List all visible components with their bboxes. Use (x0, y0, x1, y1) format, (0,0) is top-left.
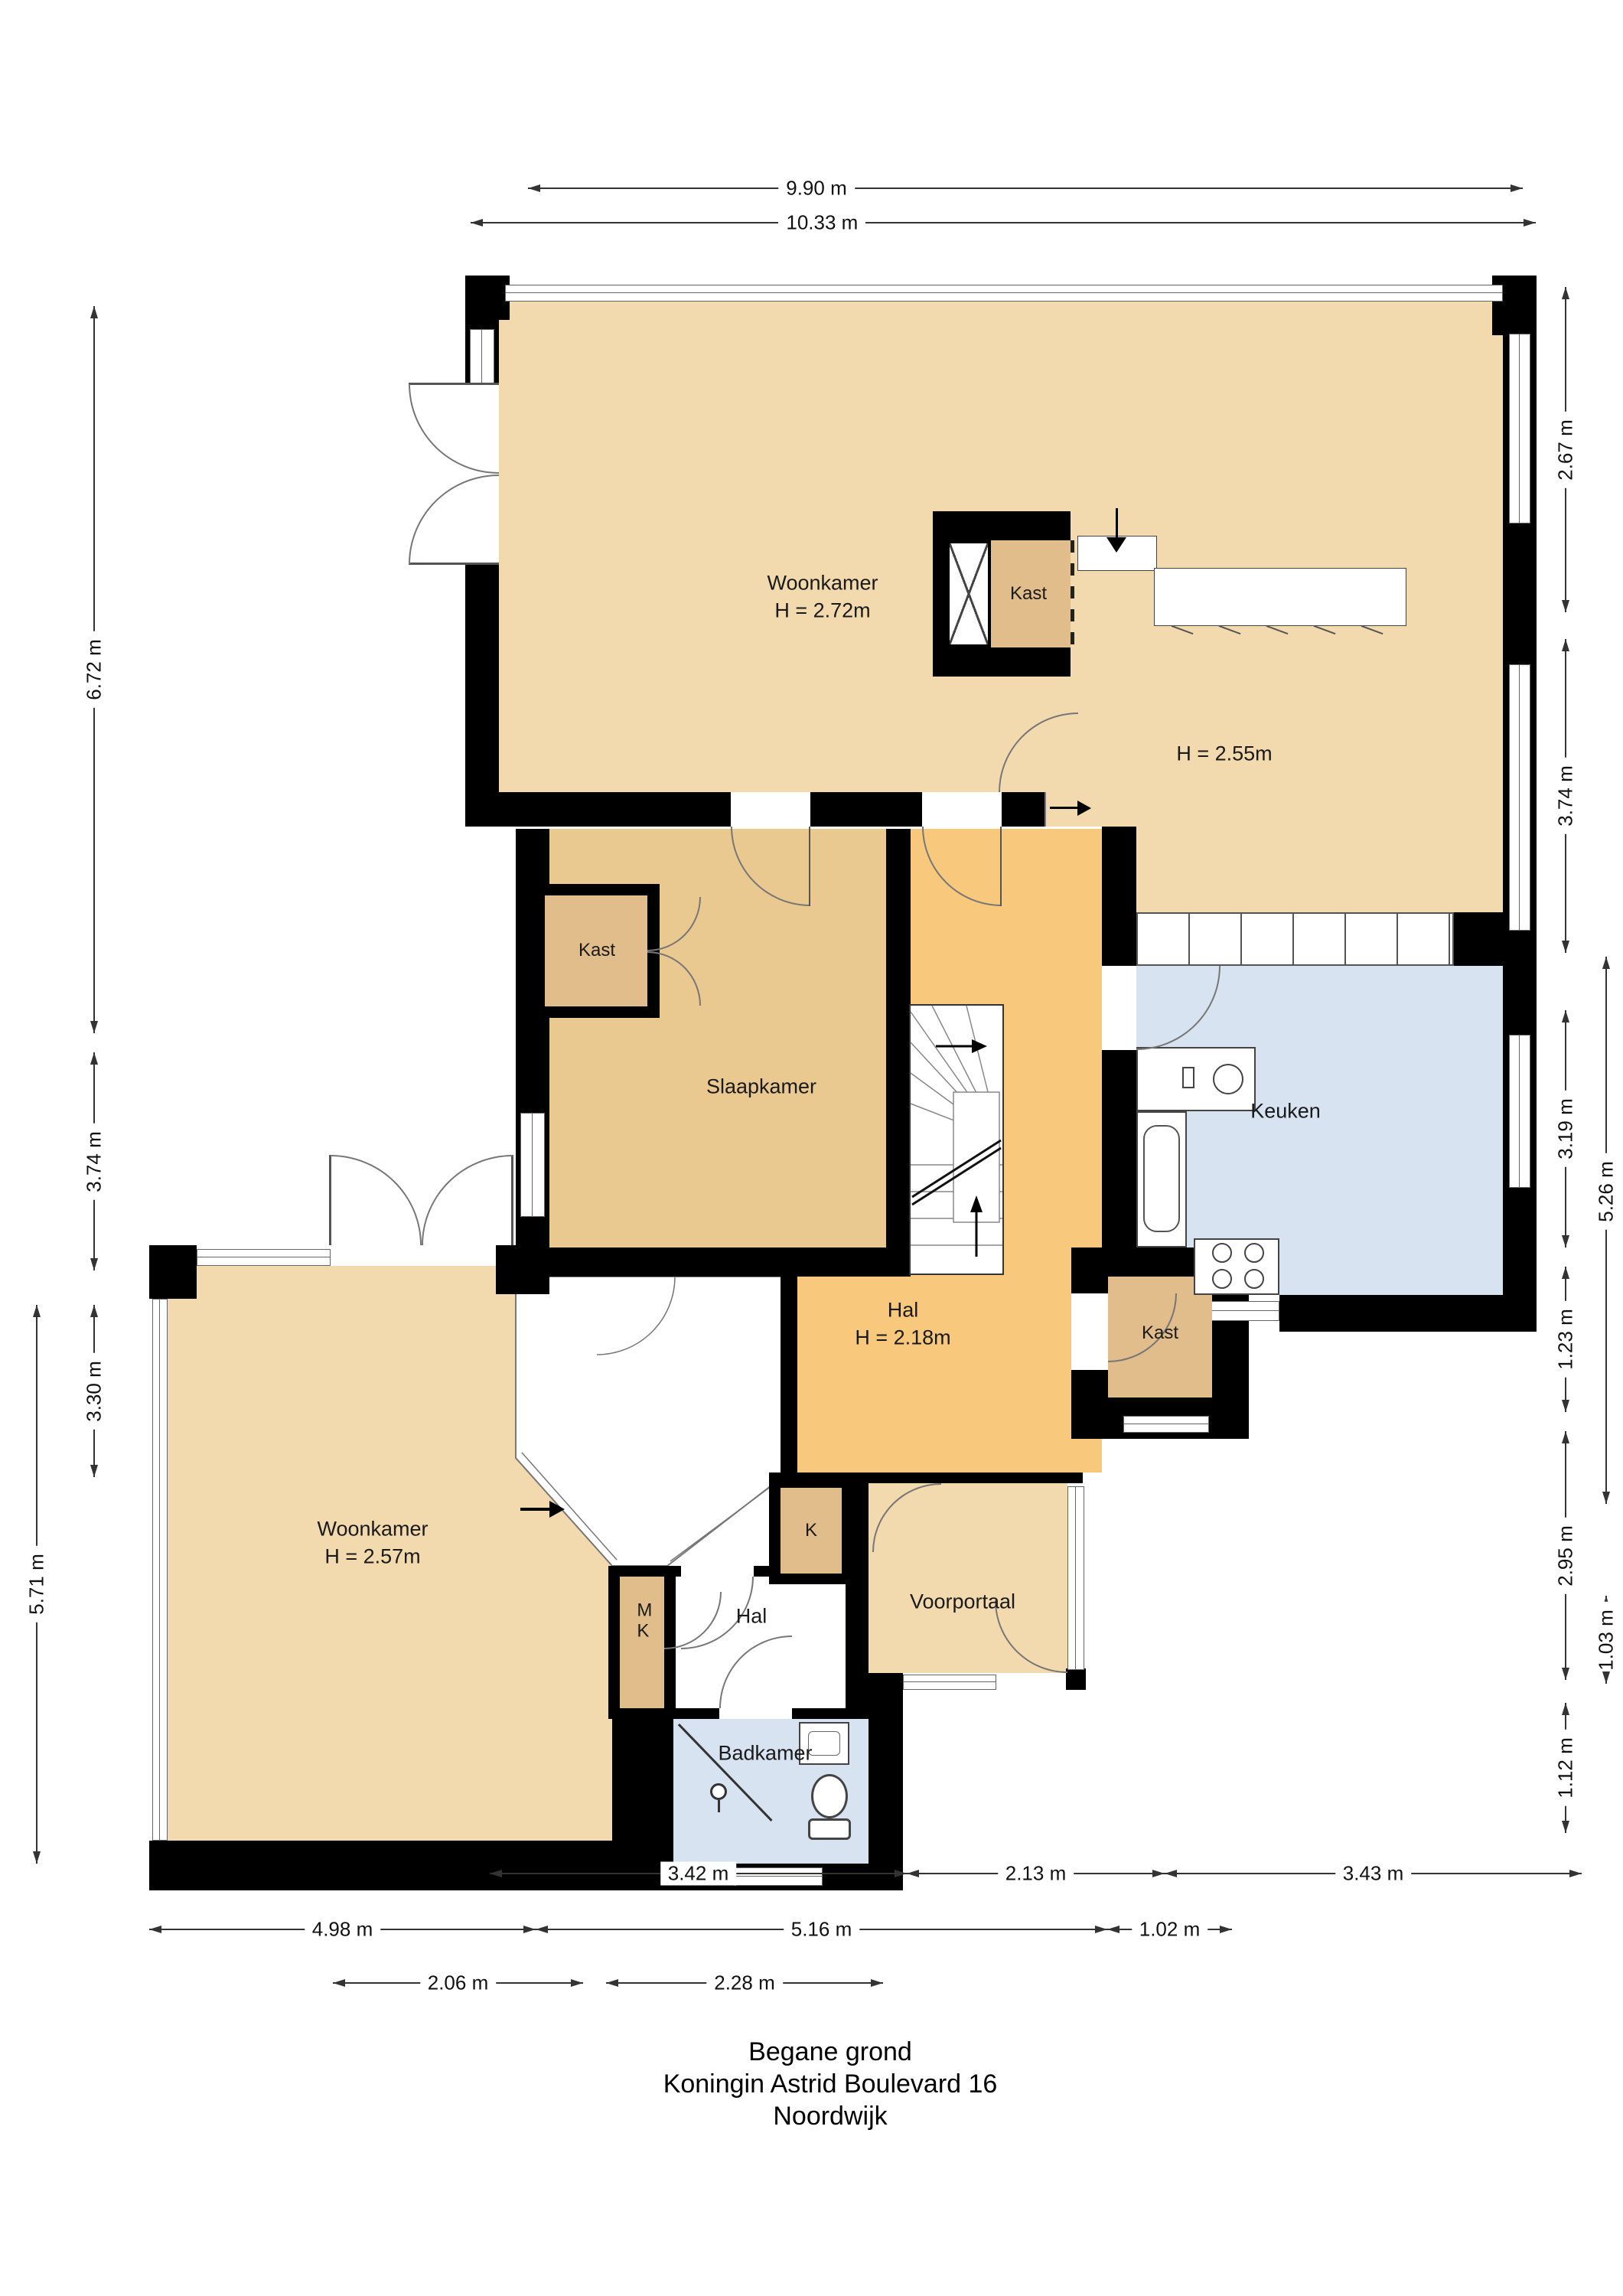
hall-floor-area-mid (1002, 1006, 1102, 1274)
step-arrow-stem (1116, 508, 1118, 537)
door-opening-small-hall-bottom (719, 1708, 792, 1719)
window-left-upper (470, 329, 494, 386)
plan-title-floor: Begane grond (748, 2037, 912, 2067)
dimension-line-bottom-5: 5.16 m (536, 1929, 1107, 1930)
dimension-label: 2.13 m (998, 1862, 1074, 1886)
door-opening-hall-closet (1071, 1293, 1108, 1370)
door-arc-small-hall-bottom (719, 1636, 792, 1708)
dimension-label: 2.95 m (1554, 1518, 1578, 1594)
room-label-k-closet: K (805, 1520, 817, 1541)
dimension-label: 6.72 m (83, 631, 106, 708)
door-leaf-hall-top (1000, 827, 1002, 906)
dimension-line-top-1: 9.90 m (528, 188, 1523, 189)
stove-burner-3 (1212, 1269, 1232, 1289)
dimension-line-right-1: 2.67 m (1565, 287, 1566, 612)
mk-label-text: MK (637, 1600, 647, 1642)
dimension-label: 2.06 m (420, 1971, 497, 1995)
step-arrow-down-icon (1106, 537, 1126, 553)
wall-hall-kitchen (1102, 827, 1136, 1295)
window-top-facade (505, 285, 1503, 302)
dimension-line-bottom-7: 2.06 m (333, 1982, 583, 1984)
dimension-label: 5.71 m (25, 1546, 49, 1623)
door-opening-livingroom-bedroom (731, 792, 810, 827)
wall-kitchen-cabinet-end (1454, 912, 1503, 966)
dishwasher-plate-icon (1213, 1064, 1243, 1094)
dimension-line-right-6: 2.95 m (1565, 1431, 1566, 1680)
room-label-living-upper: Woonkamer (767, 572, 878, 595)
window-vestibule-bottom (903, 1675, 996, 1690)
dining-arrow-right-icon (1077, 801, 1091, 816)
french-door-arc-upper-1 (409, 384, 499, 474)
bathroom-sink-basin (808, 1731, 840, 1756)
window-right-kitchen (1509, 1035, 1530, 1188)
dimension-line-bottom-3: 3.43 m (1165, 1873, 1582, 1874)
stove-burner-1 (1212, 1243, 1232, 1263)
wall-vestibule-door-post (1066, 1668, 1086, 1690)
window-right-2 (1509, 664, 1530, 931)
dimension-line-bottom-8: 2.28 m (606, 1982, 883, 1984)
dimension-label: 1.03 m (1595, 1602, 1618, 1678)
dimension-label: 1.23 m (1554, 1301, 1578, 1378)
shower-head-icon (710, 1783, 727, 1800)
room-height-living-lower: H = 2.57m (324, 1545, 420, 1569)
dimension-label: 4.98 m (305, 1918, 381, 1942)
dimension-label: 1.02 m (1132, 1918, 1208, 1942)
dimension-line-left-4: 5.71 m (36, 1305, 37, 1864)
toilet-bowl (811, 1774, 848, 1818)
room-label-kitchen: Keuken (1250, 1100, 1321, 1124)
wall-kitchen-bottom (1279, 1295, 1537, 1332)
dimension-line-right-5: 1.23 m (1565, 1267, 1566, 1412)
door-opening-kitchen (1102, 966, 1136, 1050)
room-label-small-hall: Hal (736, 1605, 768, 1629)
dimension-label: 3.30 m (83, 1353, 106, 1430)
wall-corner-top-left (465, 276, 510, 320)
plan-title-address: Koningin Astrid Boulevard 16 (663, 2069, 998, 2099)
room-label-closet-bedroom: Kast (578, 940, 615, 961)
kitchen-stove (1194, 1238, 1279, 1295)
room-label-mk-closet: MK (637, 1600, 647, 1642)
dining-arrow-stem (1050, 807, 1077, 809)
dimension-line-bottom-6: 1.02 m (1107, 1929, 1232, 1930)
dimension-line-left-2: 3.74 m (93, 1052, 95, 1270)
dimension-line-left-1: 6.72 m (93, 306, 95, 1033)
door-opening-livingroom-hall (922, 792, 1002, 827)
shower-head-stem (718, 1800, 720, 1812)
dimension-label: 3.43 m (1335, 1862, 1412, 1886)
dimension-line-right-3: 3.19 m (1565, 1010, 1566, 1247)
dimension-label: 3.74 m (83, 1124, 106, 1200)
dimension-label: 5.16 m (784, 1918, 860, 1942)
passage-hall-dining (1045, 792, 1103, 827)
room-height-living-upper: H = 2.72m (774, 599, 870, 623)
dimension-label: 3.74 m (1554, 758, 1578, 834)
dimension-line-left-3: 3.30 m (93, 1305, 95, 1477)
dimension-label: 3.42 m (660, 1862, 737, 1886)
dimension-line-right-2: 3.74 m (1565, 639, 1566, 953)
dimension-label: 9.90 m (778, 177, 855, 201)
hall-floor-area-bottom (797, 1274, 1102, 1473)
door-leaf-bedroom (809, 827, 810, 906)
wall-bottom-left-block (149, 1841, 650, 1890)
window-hall-closet-bottom (1123, 1416, 1209, 1433)
room-label-bathroom: Badkamer (718, 1742, 812, 1766)
stove-burner-2 (1244, 1243, 1264, 1263)
kitchen-cabinet-row (1136, 912, 1454, 966)
plan-title-city: Noordwijk (773, 2102, 887, 2131)
room-height-dining: H = 2.55m (1176, 742, 1272, 766)
window-right-1 (1509, 334, 1530, 523)
dimension-line-right-7: 1.03 m (1605, 1596, 1607, 1684)
dimension-line-top-2: 10.33 m (471, 222, 1536, 223)
window-livingroom-top (197, 1249, 331, 1266)
wall-small-hall-right (846, 1473, 869, 1719)
dining-wardrobe-strip (1154, 568, 1406, 626)
dimension-label: 10.33 m (778, 211, 865, 235)
mk-closet-fill (620, 1577, 664, 1708)
dimension-line-bottom-1: 3.42 m (490, 1873, 907, 1874)
room-label-living-lower: Woonkamer (317, 1518, 428, 1541)
dimension-line-right-8: 1.12 m (1565, 1703, 1566, 1833)
stove-burner-4 (1244, 1269, 1264, 1289)
wall-bathroom-right (869, 1673, 903, 1890)
toilet-cistern (808, 1818, 851, 1840)
room-label-closet-hall: Kast (1142, 1322, 1178, 1344)
floorplan-page: { "title": { "line1": "Begane grond", "l… (0, 0, 1623, 2296)
wall-porch-hall (781, 1274, 797, 1489)
staircase (909, 1004, 1004, 1275)
dimension-label: 2.67 m (1554, 412, 1578, 488)
wall-corner-lower-left (149, 1245, 197, 1299)
dimension-line-bottom-2: 2.13 m (907, 1873, 1165, 1874)
dimension-label: 1.12 m (1554, 1730, 1578, 1806)
french-door-arc-upper-2 (409, 475, 499, 564)
room-label-vestibule: Voorportaal (910, 1590, 1015, 1614)
wall-bedroom-stairs (886, 829, 911, 1274)
wall-bedroom-bottom (516, 1247, 911, 1277)
dishwasher-glass-icon (1182, 1067, 1194, 1088)
room-height-hall: H = 2.18m (855, 1326, 950, 1350)
dining-room-floor-area (1136, 827, 1503, 912)
room-label-bedroom: Slaapkamer (706, 1075, 816, 1099)
shaft-box (947, 540, 991, 647)
kitchen-sink (1143, 1125, 1180, 1232)
window-livingroom-left (152, 1299, 168, 1841)
dimension-line-bottom-4: 4.98 m (149, 1929, 536, 1930)
closet-upper-dashed-opening (1071, 540, 1074, 647)
window-bedroom-left (520, 1113, 545, 1217)
entrance-porch-outline (505, 1263, 796, 1577)
window-vestibule-right (1067, 1486, 1084, 1670)
french-door-arc-lower-2 (422, 1155, 513, 1245)
wall-corner-lower-mid (496, 1245, 549, 1294)
dimension-label: 2.28 m (706, 1971, 783, 1995)
window-bathroom-bottom (735, 1867, 823, 1886)
dimension-label: 3.19 m (1554, 1091, 1578, 1167)
french-door-arc-lower-1 (331, 1155, 422, 1245)
dimension-label: 5.26 m (1595, 1154, 1618, 1231)
room-label-hall: Hal (888, 1299, 919, 1322)
door-opening-small-hall-top (681, 1566, 754, 1577)
dimension-line-right-4: 5.26 m (1605, 957, 1607, 1504)
room-label-closet-upper: Kast (1010, 583, 1047, 605)
